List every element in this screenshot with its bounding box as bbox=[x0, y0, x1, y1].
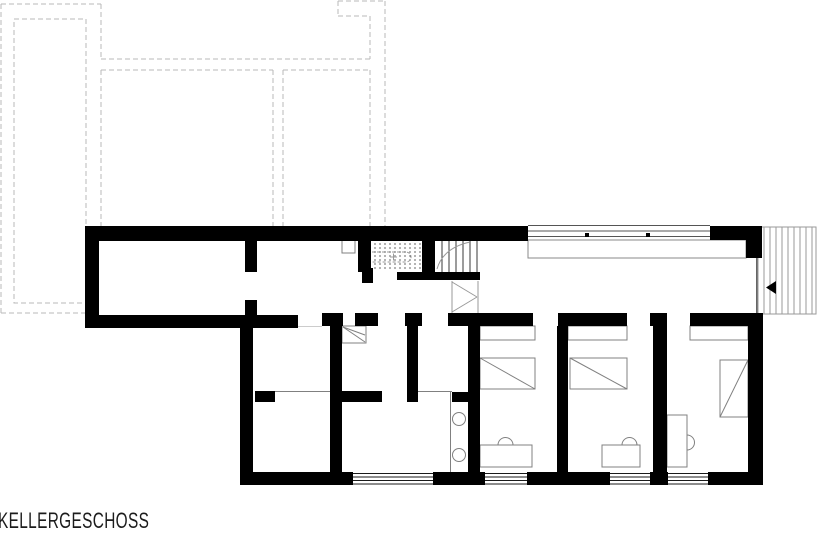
walls bbox=[85, 226, 763, 485]
chair bbox=[622, 438, 637, 445]
entry-direction-arrow-icon bbox=[766, 281, 776, 294]
washbasin-circle bbox=[453, 449, 466, 462]
drawing-title: KELLERGESCHOSS bbox=[0, 508, 149, 534]
desk bbox=[480, 445, 532, 467]
furniture bbox=[275, 240, 748, 472]
garage-door-dot bbox=[585, 233, 589, 237]
garage-door-track-outline bbox=[528, 240, 746, 258]
floor-plan-canvas: KELLERGESCHOSS bbox=[0, 0, 820, 534]
chair bbox=[498, 438, 513, 445]
driveway-ramp bbox=[758, 227, 816, 314]
stair-flight-dashed-treads bbox=[370, 239, 420, 271]
stair-lower-run bbox=[452, 281, 478, 313]
dashed-upper-floor-outline bbox=[1, 1, 385, 313]
floor-plan-drawing bbox=[0, 0, 820, 534]
closet bbox=[568, 326, 627, 340]
bed-diagonal bbox=[720, 360, 748, 417]
garage-sectional-door-lines bbox=[528, 226, 710, 237]
garage-door-dot bbox=[646, 233, 650, 237]
closet bbox=[480, 326, 535, 340]
bed-diagonal bbox=[570, 358, 627, 389]
desk bbox=[667, 415, 687, 467]
stair-walk-lines bbox=[372, 242, 470, 269]
bed-diagonal bbox=[480, 358, 535, 389]
washbasin-circle bbox=[453, 413, 466, 426]
shaft-box bbox=[342, 240, 355, 253]
desk bbox=[602, 445, 640, 467]
chair bbox=[687, 435, 695, 450]
closet bbox=[690, 326, 748, 340]
stair-flight-solid-treads bbox=[442, 239, 477, 272]
corner-steps-symbol bbox=[342, 326, 366, 343]
